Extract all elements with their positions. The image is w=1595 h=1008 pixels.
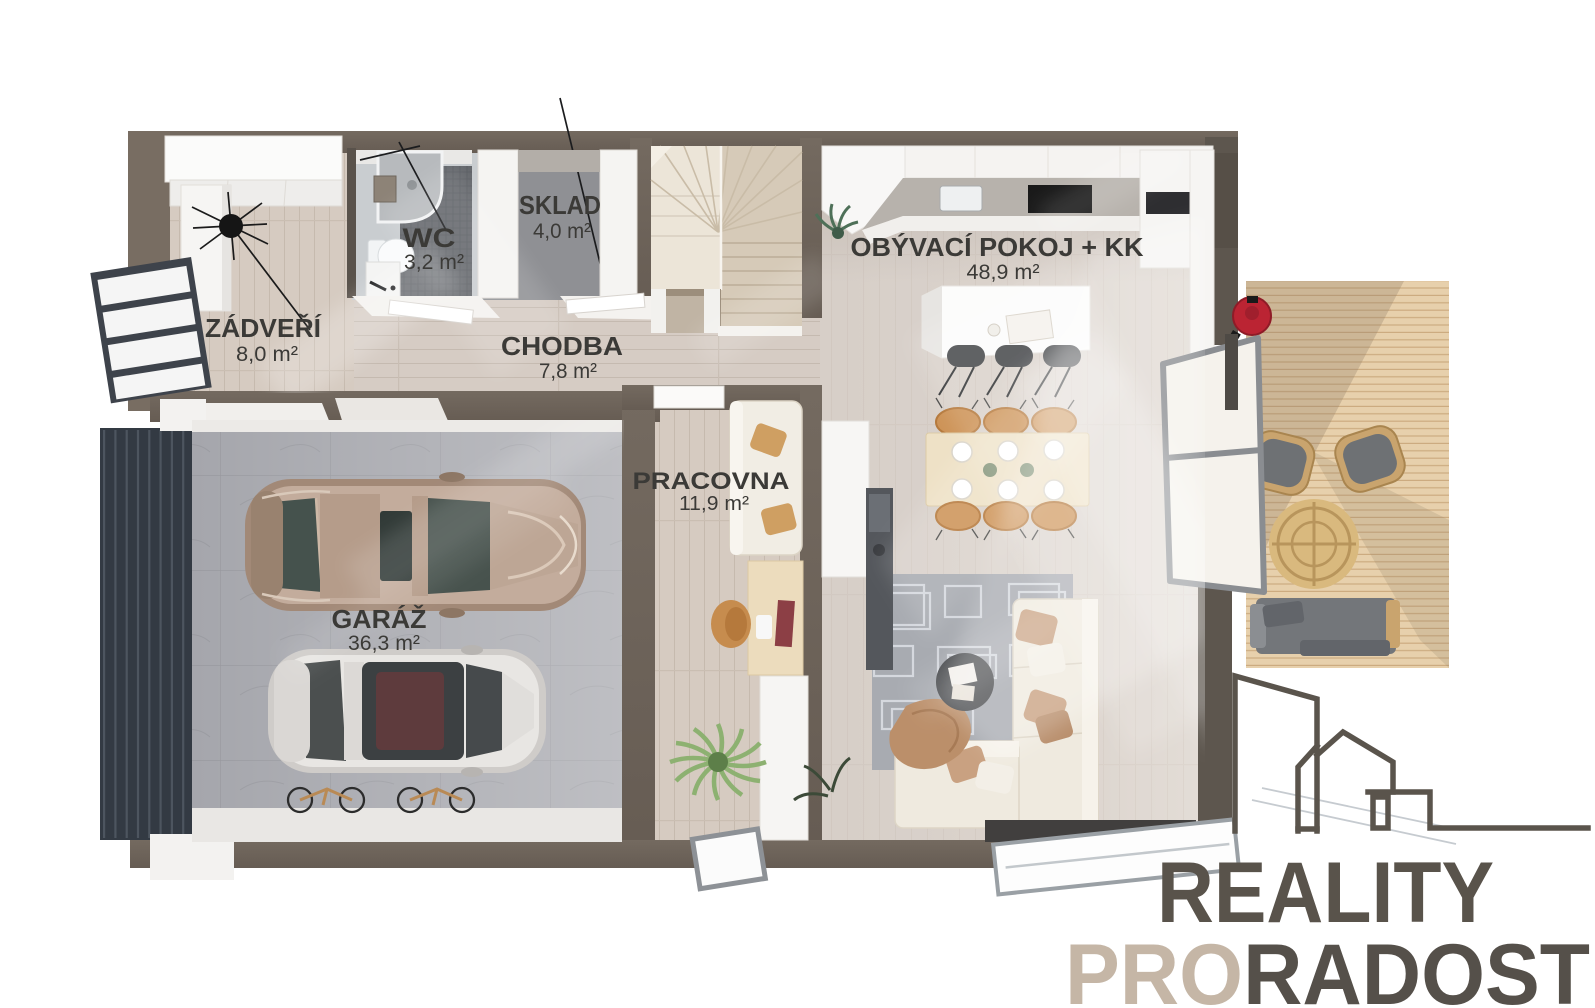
svg-text:7,8 m²: 7,8 m² [539, 360, 597, 383]
svg-text:4,0 m²: 4,0 m² [533, 220, 591, 243]
svg-text:WC: WC [403, 223, 456, 253]
svg-text:CHODBA: CHODBA [501, 331, 623, 361]
svg-text:GARÁŽ: GARÁŽ [332, 604, 427, 634]
svg-text:OBÝVACÍ POKOJ + KK: OBÝVACÍ POKOJ + KK [851, 232, 1144, 262]
svg-text:8,0 m²: 8,0 m² [236, 343, 298, 366]
svg-text:11,9 m²: 11,9 m² [679, 493, 749, 515]
svg-text:PRORADOST: PRORADOST [1065, 927, 1590, 1008]
svg-text:48,9 m²: 48,9 m² [967, 261, 1040, 284]
svg-text:36,3 m²: 36,3 m² [348, 632, 420, 655]
svg-text:SKLAD: SKLAD [519, 190, 601, 220]
svg-text:PRACOVNA: PRACOVNA [633, 468, 790, 495]
svg-text:3,2 m²: 3,2 m² [404, 251, 464, 274]
svg-text:ZÁDVEŘÍ: ZÁDVEŘÍ [205, 313, 322, 343]
